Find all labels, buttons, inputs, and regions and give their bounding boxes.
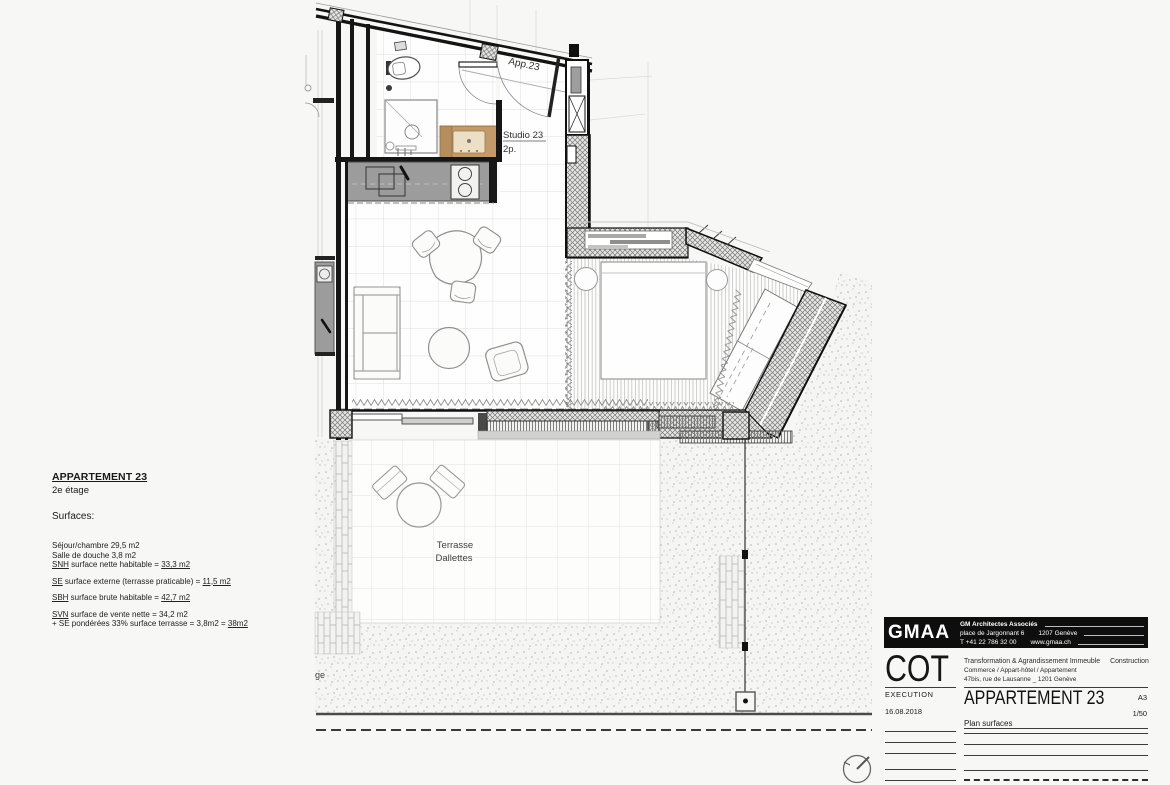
pouf (429, 328, 470, 369)
right-wall (566, 44, 590, 258)
firm-city: 1207 Genève (1038, 629, 1077, 638)
unit-sublabel: 2p. (503, 144, 516, 155)
phase-label: EXECUTION (885, 690, 934, 699)
edge-text-fragment: ge (315, 670, 325, 680)
firm-street: place de Jargonnant 6 (960, 629, 1024, 638)
terrace-material-label: Dallettes (436, 553, 473, 564)
neighbor-unit (305, 30, 335, 437)
bed (601, 262, 706, 379)
north-symbol (844, 756, 871, 783)
surface-line: SNH surface nette habitable = 33,3 m2 (52, 560, 302, 570)
firm-banner: GMAA GM Architectes Associés place de Ja… (884, 617, 1148, 648)
terrace: Terrasse Dallettes (350, 440, 660, 623)
sliding-door-leaf (402, 418, 473, 424)
notes-title: APPARTEMENT 23 (52, 471, 302, 483)
project-description: Transformation & Agrandissement Immeuble… (964, 657, 1149, 684)
window-sill-hatch (487, 411, 659, 421)
title-block: GMAA GM Architectes Associés place de Ja… (884, 613, 1150, 785)
project-line3: 47bis, rue de Lausanne _ 1201 Genève (964, 675, 1149, 684)
surface-line: Séjour/chambre 29,5 m2 (52, 541, 302, 551)
drawing-sheet: { "canvas": { "bg": "#f7f7f5", "ink": "#… (0, 0, 1170, 785)
bathroom-hall-wall (496, 100, 502, 162)
cooktop (451, 165, 479, 199)
scale-label: 1/50 (1133, 709, 1147, 718)
project-line1: Transformation & Agrandissement Immeuble (964, 658, 1100, 665)
sofa (354, 287, 400, 379)
surface-line: SE surface externe (terrasse praticable)… (52, 577, 302, 587)
firm-name: GM Architectes Associés (960, 620, 1038, 629)
surface-line: SBH surface brute habitable = 42,7 m2 (52, 593, 302, 603)
project-code: COT (885, 652, 963, 686)
dining-chair (450, 280, 477, 303)
firm-website: www.gmaa.ch (1030, 638, 1070, 647)
surface-line: SVN surface de vente nette = 34,2 m2 (52, 610, 302, 620)
firm-phone: T +41 22 786 32 00 (960, 638, 1016, 647)
firm-details: GM Architectes Associés place de Jargonn… (960, 619, 1144, 646)
surface-notes: APPARTEMENT 23 2e étage Surfaces: Séjour… (52, 471, 302, 629)
notes-floor: 2e étage (52, 485, 302, 496)
south-window-band (330, 410, 660, 439)
terrace-label: Terrasse (437, 540, 473, 551)
paper-format: A3 (1138, 693, 1147, 702)
project-line2: Commerce / Appart-hôtel / Appartement (964, 666, 1149, 675)
surface-line: + SE pondérées 33% surface terrasse = 3,… (52, 619, 302, 629)
terrace-table (397, 483, 441, 527)
surface-line: Salle de douche 3,8 m2 (52, 551, 302, 561)
drawing-name: Plan surfaces (964, 719, 1012, 728)
vanity-cabinet (440, 126, 497, 158)
sheet-title: APPARTEMENT 23 (964, 688, 1135, 708)
gmaa-logo: GMAA (888, 622, 960, 644)
nightstand-left (575, 268, 598, 291)
nightstand-right (707, 270, 728, 291)
date-label: 16.08.2018 (885, 707, 922, 716)
floor-drain (386, 85, 392, 91)
shower (385, 100, 437, 156)
cistern (394, 41, 406, 50)
notes-section-label: Surfaces: (52, 511, 302, 522)
unit-label: Studio 23 (503, 130, 543, 141)
corner-post (723, 412, 749, 439)
terrace-post (330, 410, 352, 438)
kitchen-counter (335, 157, 497, 203)
